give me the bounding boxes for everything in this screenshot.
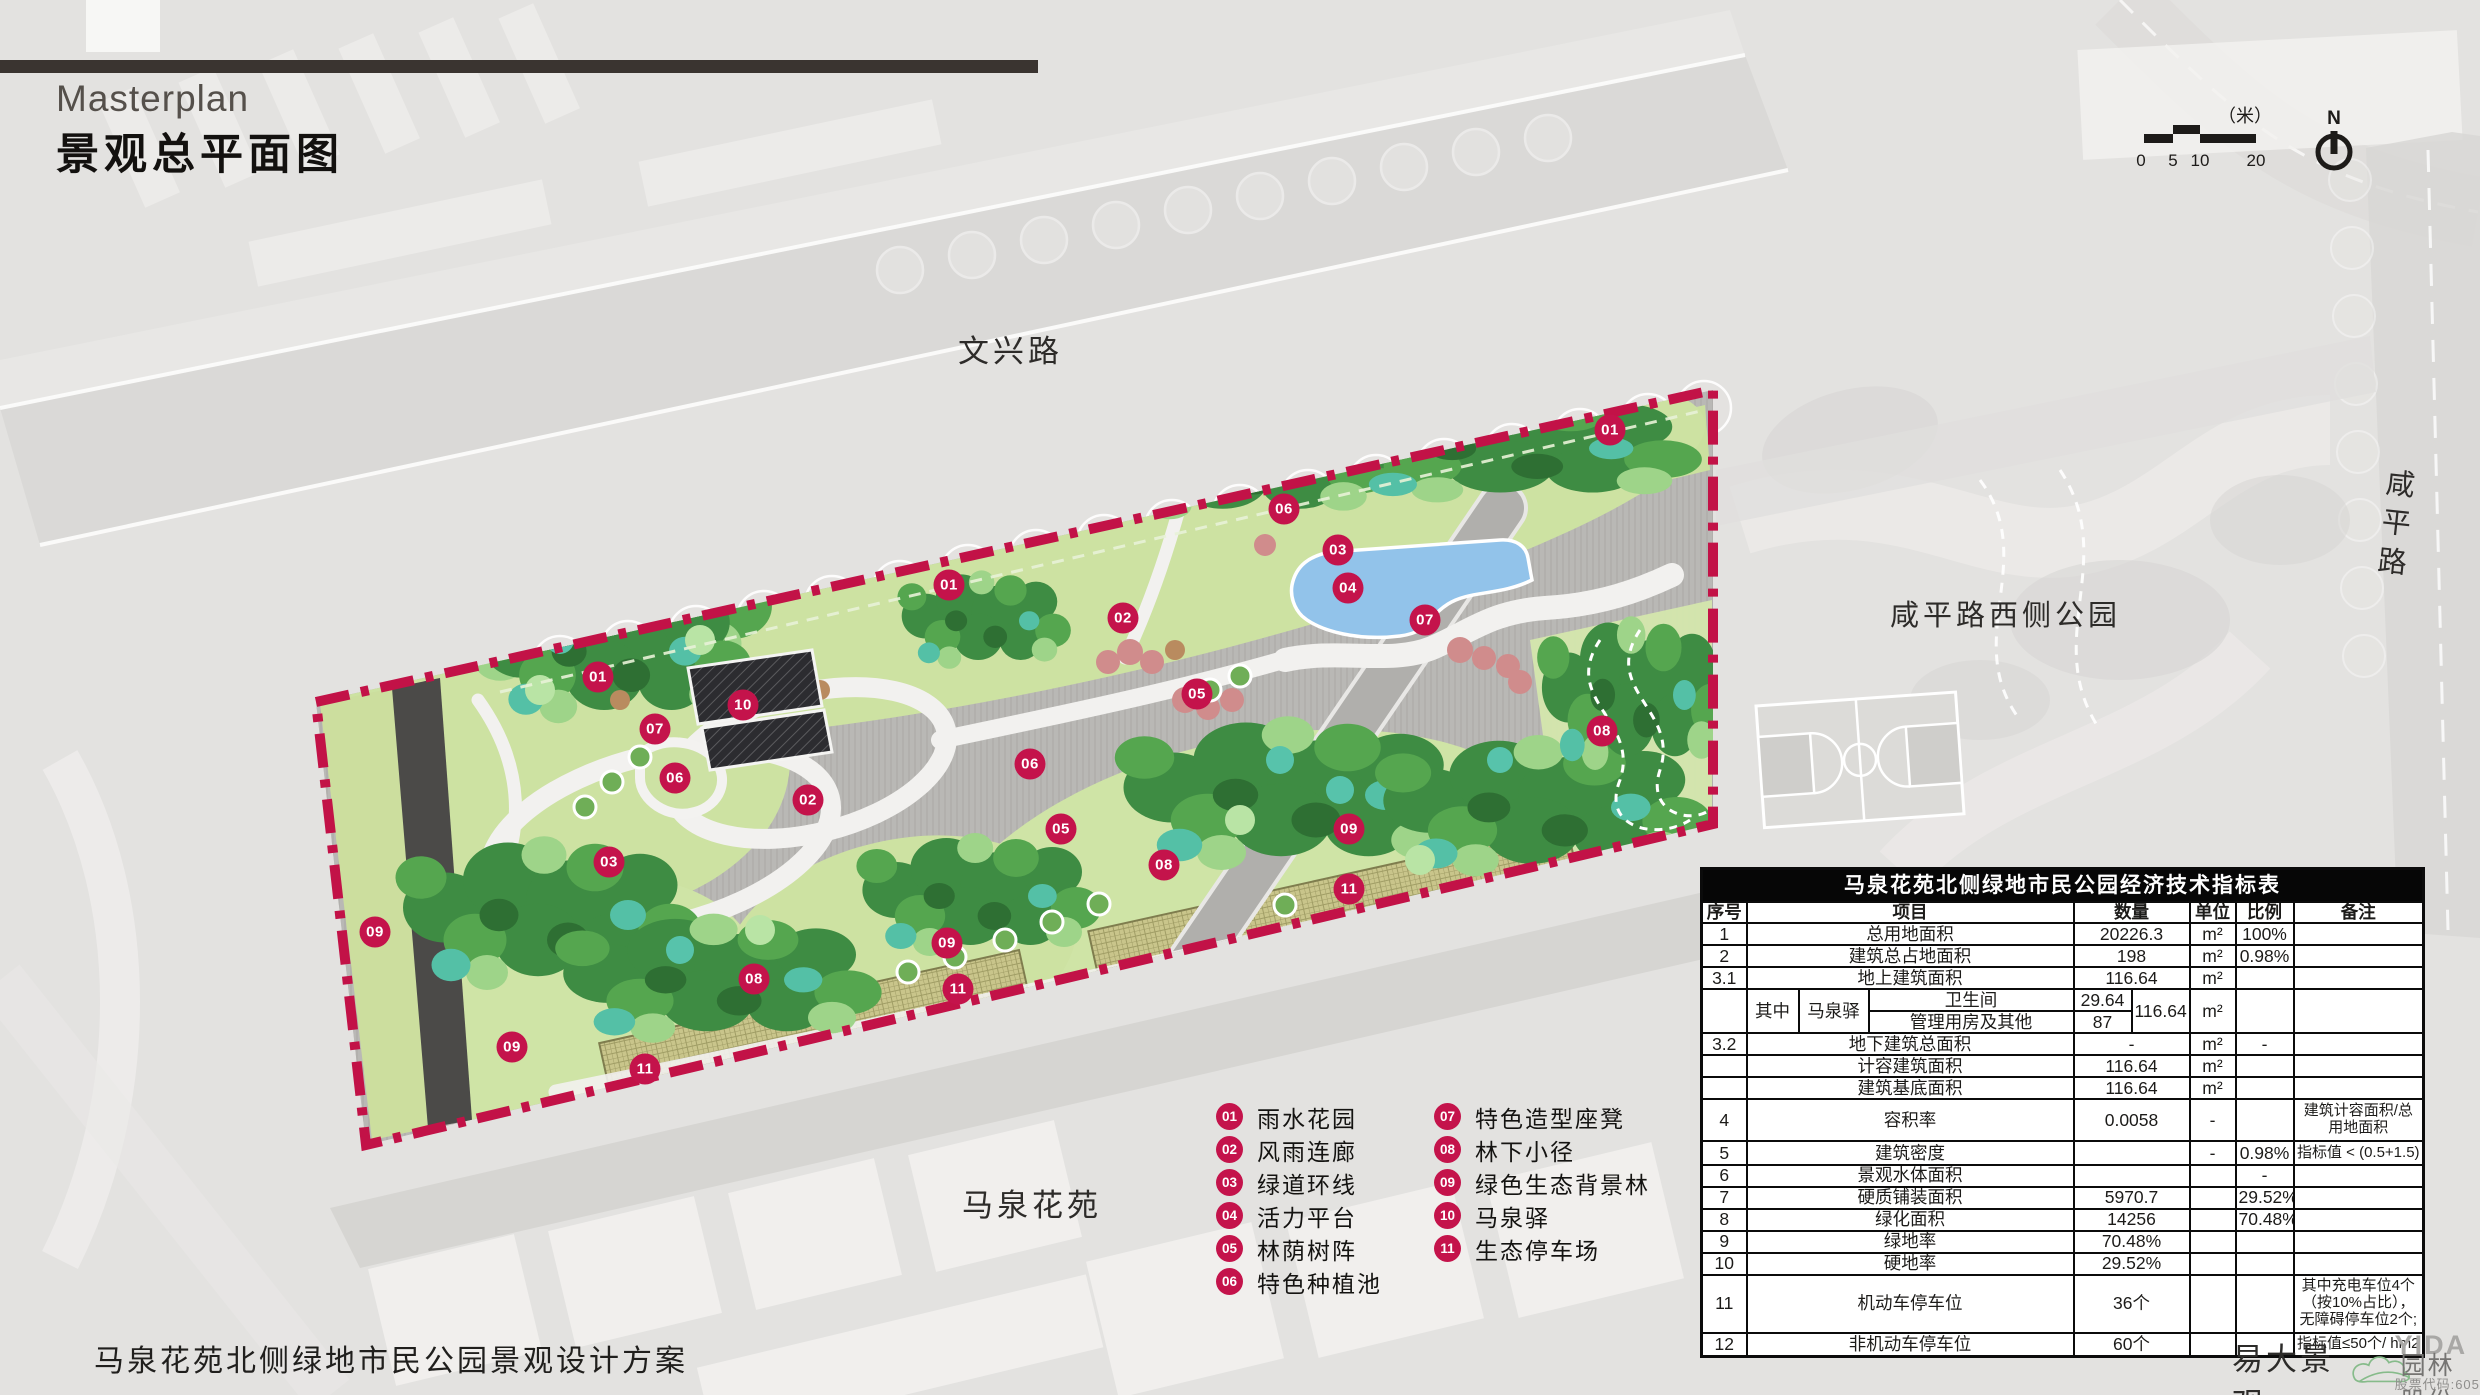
table-cell	[1702, 1055, 1747, 1077]
table-cell: 建筑基底面积	[1747, 1077, 2074, 1099]
table-cell	[2236, 1253, 2294, 1275]
plan-marker-11: 11	[1334, 874, 1365, 905]
table-cell: m²	[2190, 923, 2236, 945]
table-row: 6景观水体面积-	[1702, 1165, 2424, 1186]
scale-unit-label: （米）	[2218, 106, 2272, 126]
masterplan-sheet: Masterplan 景观总平面图 文兴路 咸平路西侧公园 咸平路 马泉花苑 （…	[0, 0, 2480, 1395]
table-row: 9绿地率70.48%	[1702, 1231, 2424, 1253]
legend-number-badge: 10	[1434, 1202, 1461, 1229]
table-cell: 29.52%	[2074, 1253, 2190, 1275]
table-cell: m²	[2190, 967, 2236, 989]
table-cell: 5970.7	[2074, 1187, 2190, 1209]
north-arrow-icon: N	[2318, 108, 2350, 168]
table-cell: 绿化面积	[1747, 1209, 2074, 1231]
table-cell: 87	[2074, 1011, 2132, 1033]
legend-label: 活力平台	[1257, 1199, 1357, 1233]
table-cell	[2294, 989, 2424, 1033]
plan-marker-08: 08	[1149, 850, 1180, 881]
table-cell: 总用地面积	[1747, 923, 2074, 945]
col-header-qty: 数量	[2074, 902, 2190, 923]
table-cell	[2294, 967, 2424, 989]
legend-item: 03绿道环线	[1216, 1170, 1382, 1195]
svg-text:10: 10	[2191, 151, 2210, 170]
table-cell: 116.64	[2074, 1055, 2190, 1077]
table-cell: 198	[2074, 945, 2190, 967]
table-row: 5建筑密度-0.98%指标值 < (0.5+1.5)	[1702, 1141, 2424, 1165]
scale-bar: （米） 0 5 10 20	[2136, 106, 2272, 170]
plan-marker-01: 01	[1595, 415, 1626, 446]
table-cell	[2190, 1275, 2236, 1333]
corner-box	[86, 0, 160, 52]
plan-marker-06: 06	[1269, 494, 1300, 525]
legend-column-2: 07特色造型座凳08林下小径09绿色生态背景林10马泉驿11生态停车场	[1434, 1104, 1650, 1294]
table-header-row: 序号 项目 数量 单位 比例 备注	[1702, 902, 2424, 923]
plan-marker-09: 09	[932, 928, 963, 959]
table-cell	[2236, 1099, 2294, 1141]
plan-marker-07: 07	[640, 714, 671, 745]
table-cell	[2236, 1055, 2294, 1077]
table-cell: 地上建筑面积	[1747, 967, 2074, 989]
legend-column-1: 01雨水花园02风雨连廊03绿道环线04活力平台05林荫树阵06特色种植池	[1216, 1104, 1382, 1294]
table-row: 计容建筑面积116.64m²	[1702, 1055, 2424, 1077]
plan-marker-01: 01	[583, 662, 614, 693]
plan-marker-11: 11	[630, 1054, 661, 1085]
table-cell: 1	[1702, 923, 1747, 945]
table-cell	[1702, 989, 1747, 1033]
table-cell: 卫生间	[1869, 989, 2074, 1011]
plan-marker-08: 08	[739, 964, 770, 995]
table-cell: -	[2236, 1033, 2294, 1055]
plan-marker-05: 05	[1182, 679, 1213, 710]
table-cell: 计容建筑面积	[1747, 1055, 2074, 1077]
table-cell: 其中充电车位4个（按10%占比），无障碍停车位2个;	[2294, 1275, 2424, 1333]
plan-marker-05: 05	[1046, 814, 1077, 845]
table-cell: 100%	[2236, 923, 2294, 945]
table-cell: 景观水体面积	[1747, 1165, 2074, 1186]
col-header-note: 备注	[2294, 902, 2424, 923]
legend-item: 08林下小径	[1434, 1137, 1650, 1162]
legend-label: 特色造型座凳	[1475, 1100, 1625, 1134]
table-cell: 建筑总占地面积	[1747, 945, 2074, 967]
table-cell	[2190, 1187, 2236, 1209]
table-cell	[2190, 1165, 2236, 1186]
legend-number-badge: 04	[1216, 1202, 1243, 1229]
table-cell: m²	[2190, 1033, 2236, 1055]
legend-label: 林下小径	[1475, 1133, 1575, 1167]
table-cell: 其中	[1747, 989, 1799, 1033]
legend-label: 生态停车场	[1475, 1232, 1600, 1266]
table-cell: 116.64	[2074, 967, 2190, 989]
table-cell	[2074, 1141, 2190, 1165]
table-cell: 8	[1702, 1209, 1747, 1231]
legend-number-badge: 02	[1216, 1136, 1243, 1163]
table-cell: 硬地率	[1747, 1253, 2074, 1275]
table-cell	[2236, 1077, 2294, 1099]
sheet-title-zh: 景观总平面图	[56, 120, 344, 182]
legend-number-badge: 05	[1216, 1235, 1243, 1262]
legend-item: 01雨水花园	[1216, 1104, 1382, 1129]
table-cell: 容积率	[1747, 1099, 2074, 1141]
table-row: 4容积率0.0058-建筑计容面积/总用地面积	[1702, 1099, 2424, 1141]
table-cell: 14256	[2074, 1209, 2190, 1231]
legend-label: 林荫树阵	[1257, 1232, 1357, 1266]
legend-number-badge: 03	[1216, 1169, 1243, 1196]
legend-item: 11生态停车场	[1434, 1236, 1650, 1261]
table-cell: 0.98%	[2236, 1141, 2294, 1165]
table-row: 1总用地面积20226.3m²100%	[1702, 923, 2424, 945]
legend-item: 06特色种植池	[1216, 1269, 1382, 1294]
table-cell: 3.2	[1702, 1033, 1747, 1055]
col-header-no: 序号	[1702, 902, 1747, 923]
table-cell	[2236, 1275, 2294, 1333]
table-cell: 5	[1702, 1141, 1747, 1165]
table-cell: 硬质铺装面积	[1747, 1187, 2074, 1209]
table-cell: m²	[2190, 1055, 2236, 1077]
plan-marker-08: 08	[1587, 716, 1618, 747]
table-cell: 马泉驿	[1799, 989, 1869, 1033]
table-cell: 非机动车停车位	[1747, 1333, 2074, 1357]
table-cell	[2236, 1231, 2294, 1253]
table-cell	[2294, 1187, 2424, 1209]
plan-marker-09: 09	[497, 1032, 528, 1063]
company-name: 易大景观	[2232, 1334, 2336, 1395]
label-maquan-huayuan: 马泉花苑	[962, 1180, 1102, 1225]
table-cell	[2294, 1055, 2424, 1077]
table-cell: 70.48%	[2074, 1231, 2190, 1253]
legend-item: 10马泉驿	[1434, 1203, 1650, 1228]
col-header-unit: 单位	[2190, 902, 2236, 923]
table-cell: 0.0058	[2074, 1099, 2190, 1141]
table-cell: 20226.3	[2074, 923, 2190, 945]
table-cell: 4	[1702, 1099, 1747, 1141]
legend-number-badge: 11	[1434, 1235, 1461, 1262]
table-row: 3.1地上建筑面积116.64m²	[1702, 967, 2424, 989]
table-cell: m²	[2190, 945, 2236, 967]
plan-marker-01: 01	[934, 570, 965, 601]
indicator-table-head-rows: 马泉花苑北侧绿地市民公园经济技术指标表 序号 项目 数量 单位 比例 备注	[1702, 869, 2424, 924]
col-header-item: 项目	[1747, 902, 2074, 923]
table-cell: 116.64	[2132, 989, 2190, 1033]
table-cell: 116.64	[2074, 1077, 2190, 1099]
table-cell: 绿地率	[1747, 1231, 2074, 1253]
table-cell	[2190, 1231, 2236, 1253]
yida-brand-block: YIDA 园林股份 股票代码:605303	[2389, 1328, 2480, 1390]
table-cell: 机动车停车位	[1747, 1275, 2074, 1333]
company-logo: 易大景观 YIDA 园林股份 股票代码:605303	[2232, 1328, 2480, 1395]
table-cell	[2294, 945, 2424, 967]
table-cell	[2294, 923, 2424, 945]
table-cell: 建筑密度	[1747, 1141, 2074, 1165]
legend-label: 马泉驿	[1475, 1199, 1550, 1233]
legend-label: 绿道环线	[1257, 1166, 1357, 1200]
legend: 01雨水花园02风雨连廊03绿道环线04活力平台05林荫树阵06特色种植池 07…	[1216, 1104, 1650, 1294]
table-sub-row: 其中马泉驿卫生间29.64116.64m²	[1702, 989, 2424, 1011]
indicator-table: 马泉花苑北侧绿地市民公园经济技术指标表 序号 项目 数量 单位 比例 备注 1总…	[1700, 867, 2425, 1358]
title-rule-bar	[0, 60, 1038, 73]
table-row: 3.2地下建筑总面积-m²-	[1702, 1033, 2424, 1055]
table-row: 2建筑总占地面积198m²0.98%	[1702, 945, 2424, 967]
plan-marker-09: 09	[360, 917, 391, 948]
table-cell: m²	[2190, 1077, 2236, 1099]
table-cell: -	[2074, 1033, 2190, 1055]
table-row: 8绿化面积1425670.48%	[1702, 1209, 2424, 1231]
label-west-park: 咸平路西侧公园	[1890, 592, 2121, 634]
plan-marker-06: 06	[660, 763, 691, 794]
table-cell: 9	[1702, 1231, 1747, 1253]
svg-text:20: 20	[2247, 151, 2266, 170]
table-row: 建筑基底面积116.64m²	[1702, 1077, 2424, 1099]
table-title: 马泉花苑北侧绿地市民公园经济技术指标表	[1702, 869, 2424, 903]
table-cell	[2294, 1209, 2424, 1231]
svg-text:N: N	[2327, 108, 2341, 129]
plan-marker-06: 06	[1015, 749, 1046, 780]
table-cell	[2074, 1165, 2190, 1186]
stock-code: 股票代码:605303	[2395, 1374, 2480, 1393]
table-cell: 3.1	[1702, 967, 1747, 989]
table-cell: -	[2190, 1099, 2236, 1141]
legend-label: 风雨连廊	[1257, 1133, 1357, 1167]
legend-number-badge: 09	[1434, 1169, 1461, 1196]
plan-marker-02: 02	[1108, 603, 1139, 634]
legend-label: 绿色生态背景林	[1475, 1166, 1650, 1200]
label-road-wenxing: 文兴路	[958, 326, 1063, 371]
table-cell: 36个	[2074, 1275, 2190, 1333]
scalebar-north-group: （米） 0 5 10 20 N	[2134, 104, 2384, 194]
table-cell: 29.52%	[2236, 1187, 2294, 1209]
table-cell: -	[2236, 1165, 2294, 1186]
basketball-court	[1756, 692, 1964, 828]
table-cell: 11	[1702, 1275, 1747, 1333]
table-cell	[2190, 1253, 2236, 1275]
table-cell	[2294, 1033, 2424, 1055]
legend-label: 雨水花园	[1257, 1100, 1357, 1134]
plan-marker-03: 03	[594, 847, 625, 878]
legend-number-badge: 06	[1216, 1268, 1243, 1295]
table-cell: -	[2190, 1141, 2236, 1165]
table-cell	[2236, 967, 2294, 989]
table-cell: 12	[1702, 1333, 1747, 1357]
table-cell	[2190, 1333, 2236, 1357]
legend-label: 特色种植池	[1257, 1265, 1382, 1299]
table-cell: 7	[1702, 1187, 1747, 1209]
table-cell: m²	[2190, 989, 2236, 1033]
legend-item: 04活力平台	[1216, 1203, 1382, 1228]
legend-item: 07特色造型座凳	[1434, 1104, 1650, 1129]
plan-marker-09: 09	[1334, 814, 1365, 845]
table-row: 7硬质铺装面积5970.729.52%	[1702, 1187, 2424, 1209]
legend-number-badge: 08	[1434, 1136, 1461, 1163]
table-cell: 0.98%	[2236, 945, 2294, 967]
indicator-table-body: 1总用地面积20226.3m²100%2建筑总占地面积198m²0.98%3.1…	[1702, 923, 2424, 1356]
table-cell: 指标值 < (0.5+1.5)	[2294, 1141, 2424, 1165]
table-cell	[2190, 1209, 2236, 1231]
legend-number-badge: 07	[1434, 1103, 1461, 1130]
table-cell: 地下建筑总面积	[1747, 1033, 2074, 1055]
plan-marker-10: 10	[728, 690, 759, 721]
svg-text:0: 0	[2136, 151, 2145, 170]
table-cell: 管理用房及其他	[1869, 1011, 2074, 1033]
table-cell: 建筑计容面积/总用地面积	[2294, 1099, 2424, 1141]
svg-text:5: 5	[2168, 151, 2177, 170]
plan-marker-03: 03	[1323, 535, 1354, 566]
sheet-title-en: Masterplan	[56, 78, 249, 120]
plan-marker-11: 11	[943, 974, 974, 1005]
table-cell	[2294, 1253, 2424, 1275]
table-cell	[2294, 1077, 2424, 1099]
table-cell: 60个	[2074, 1333, 2190, 1357]
table-cell	[1702, 1077, 1747, 1099]
table-cell	[2236, 989, 2294, 1033]
table-row: 11机动车停车位36个其中充电车位4个（按10%占比），无障碍停车位2个;	[1702, 1275, 2424, 1333]
plan-marker-04: 04	[1333, 573, 1364, 604]
table-cell: 10	[1702, 1253, 1747, 1275]
table-cell	[2294, 1165, 2424, 1186]
col-header-ratio: 比例	[2236, 902, 2294, 923]
table-title-row: 马泉花苑北侧绿地市民公园经济技术指标表	[1702, 869, 2424, 903]
table-cell: 6	[1702, 1165, 1747, 1186]
legend-item: 02风雨连廊	[1216, 1137, 1382, 1162]
table-cell: 70.48%	[2236, 1209, 2294, 1231]
legend-number-badge: 01	[1216, 1103, 1243, 1130]
table-cell: 2	[1702, 945, 1747, 967]
table-row: 10硬地率29.52%	[1702, 1253, 2424, 1275]
legend-item: 05林荫树阵	[1216, 1236, 1382, 1261]
plan-marker-07: 07	[1410, 605, 1441, 636]
legend-item: 09绿色生态背景林	[1434, 1170, 1650, 1195]
table-cell	[2294, 1231, 2424, 1253]
plan-marker-02: 02	[793, 785, 824, 816]
project-name: 马泉花苑北侧绿地市民公园景观设计方案	[94, 1336, 688, 1380]
table-cell: 29.64	[2074, 989, 2132, 1011]
